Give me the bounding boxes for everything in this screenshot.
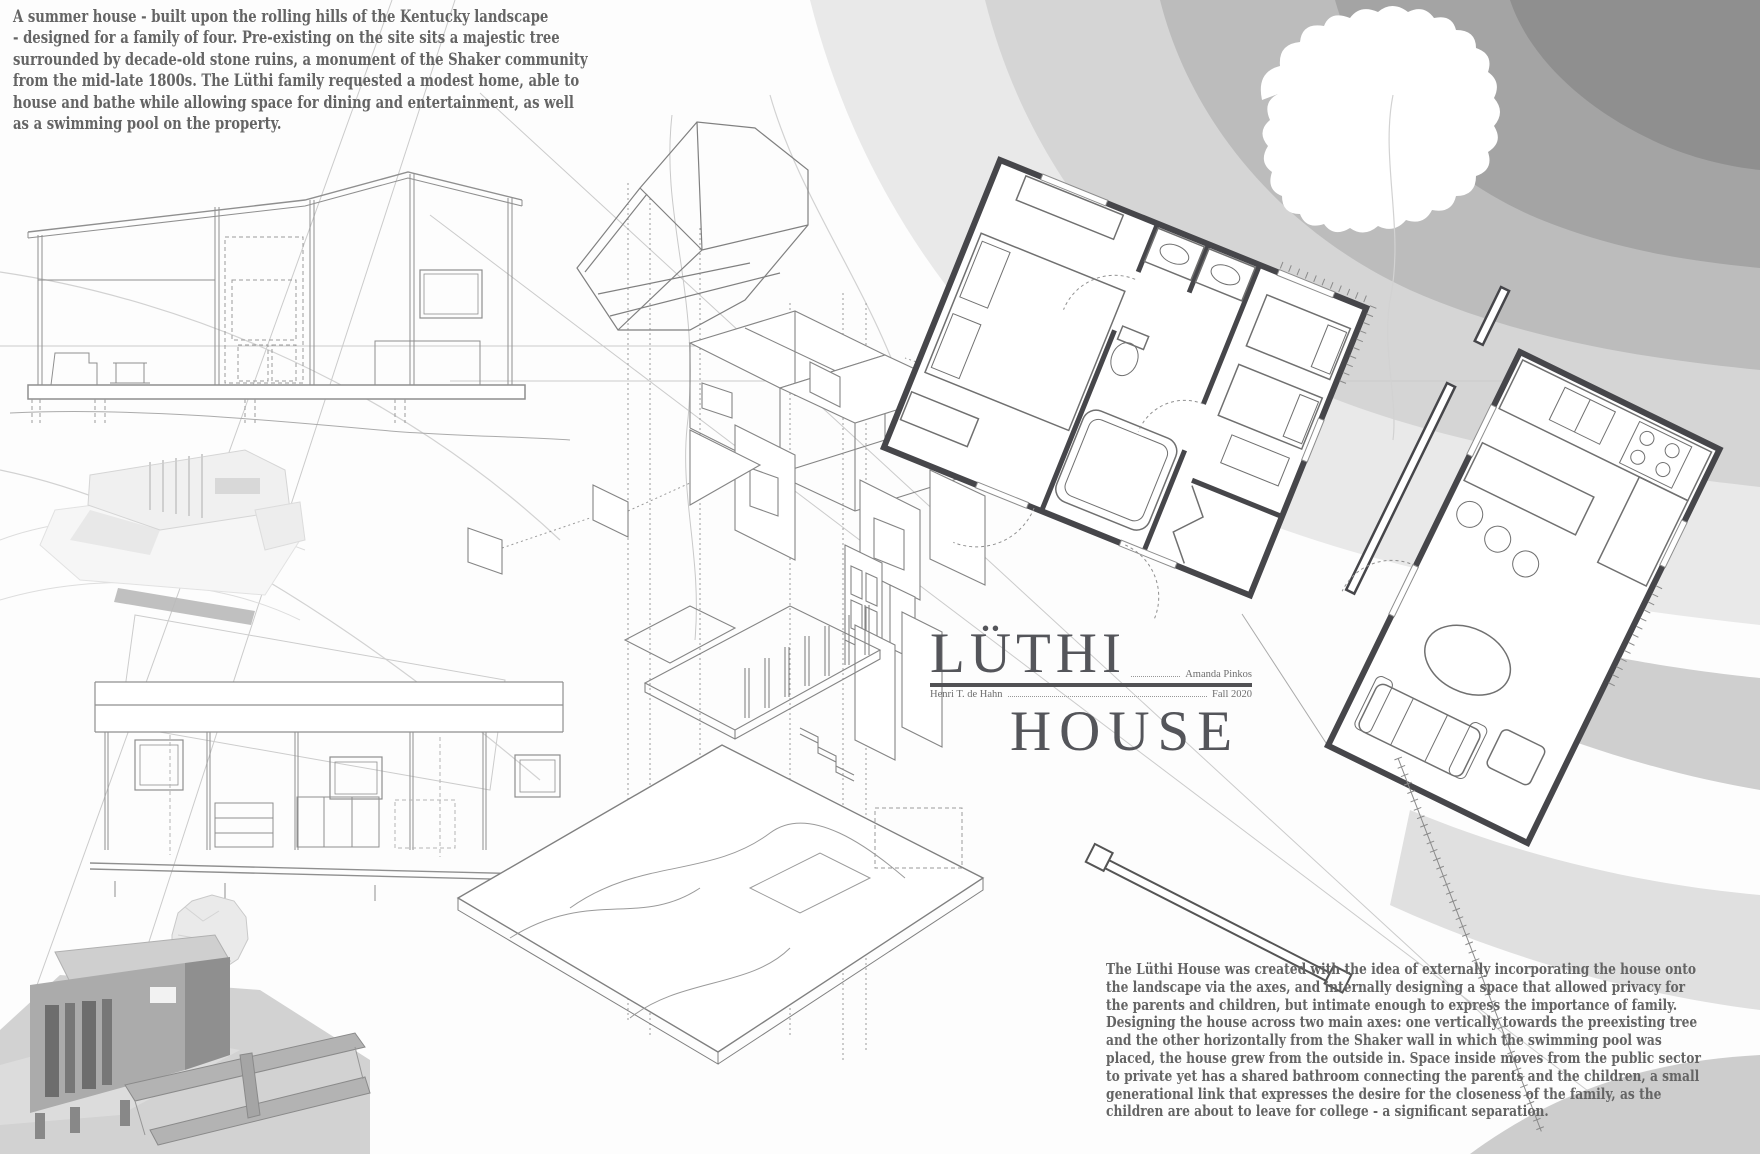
- intro-text: A summer house - built upon the rolling …: [13, 6, 588, 134]
- floor-plan-drawing: [770, 120, 1760, 920]
- credit-student: Amanda Pinkos: [1185, 669, 1252, 682]
- presentation-board: A summer house - built upon the rolling …: [0, 0, 1760, 1154]
- title-block: LÜTHI Amanda Pinkos Henri T. de Hahn Fal…: [930, 626, 1252, 760]
- plan-wing-bedrooms: [861, 153, 1375, 656]
- pool-overlay: [114, 588, 255, 625]
- title-line-1: LÜTHI: [930, 626, 1126, 682]
- credit-professor: Henri T. de Hahn: [930, 689, 1003, 702]
- description-text: The Lüthi House was created with the ide…: [1106, 961, 1701, 1121]
- dotted-leader: [1131, 675, 1180, 677]
- site-model-photo: [0, 815, 370, 1154]
- title-line-2: HOUSE: [1010, 704, 1252, 760]
- dotted-leader: [1008, 695, 1208, 697]
- plan-wing-living: [1279, 328, 1725, 846]
